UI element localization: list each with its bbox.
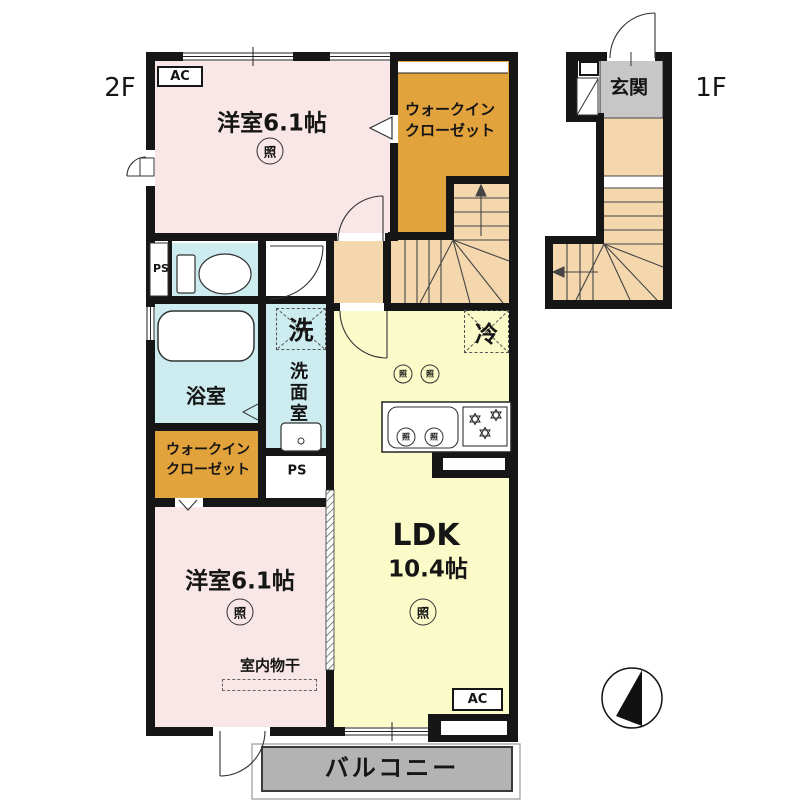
wall: [146, 423, 266, 431]
washer-symbol-box: 洗: [276, 308, 326, 350]
ldk-door-opening: [340, 303, 384, 311]
shoe-box: [580, 62, 598, 75]
fridge-symbol-box: 冷: [464, 310, 509, 353]
wall: [450, 176, 518, 184]
balcony-label: バルコニー: [325, 756, 460, 780]
room-fills: [150, 55, 664, 729]
wall: [146, 296, 334, 304]
wall: [146, 498, 334, 507]
wall: [326, 241, 334, 455]
floor-plan: 2F 1F AC AC 洋室6.1帖 照 ウォークイン クローゼット 玄関 PS…: [0, 0, 800, 800]
kitchen-light-symbol: 照: [394, 365, 413, 384]
floor-label-1f: 1F: [695, 75, 727, 101]
wic-left-label-1: ウォークイン: [166, 443, 250, 457]
entrance-label: 玄関: [610, 79, 648, 98]
wall: [545, 236, 604, 244]
toilet-door-arc: [270, 246, 323, 299]
bedroom-top-label: 洋室6.1帖: [217, 113, 327, 136]
bathtub: [158, 311, 254, 361]
balcony-door-arc: [220, 731, 265, 776]
kitchen-light-symbol: 照: [425, 428, 444, 447]
wall: [446, 176, 454, 240]
ldk-size-label: 10.4帖: [388, 559, 468, 582]
wic-top-label-1: ウォークイン: [405, 103, 495, 118]
kitchen-light-symbol: 照: [421, 365, 440, 384]
ps-label-left: PS: [153, 262, 165, 276]
washroom-label: 洗面室: [288, 362, 306, 425]
wic-left-label-2: クローゼット: [166, 463, 250, 477]
wall: [390, 52, 398, 241]
toilet-bowl: [199, 254, 251, 294]
floor-label-2f: 2F: [104, 75, 136, 101]
light-symbol: 照: [227, 599, 254, 626]
wic-top-label-2: クローゼット: [405, 124, 495, 139]
bedroom-bottom-label: 洋室6.1帖: [185, 571, 295, 594]
floorplan-svg: [0, 0, 800, 800]
toilet-tank: [177, 255, 195, 293]
light-symbol: 照: [410, 599, 437, 626]
ps-label-bottom: PS: [288, 465, 307, 478]
wall: [596, 113, 604, 244]
bedroom-top-door-opening: [337, 233, 385, 241]
light-symbol: 照: [257, 138, 284, 165]
kitchen-light-symbol: 照: [397, 428, 416, 447]
balcony-door-opening: [213, 727, 270, 736]
drying-rail: [222, 679, 317, 691]
wall: [545, 300, 672, 309]
wic-top-floor-l: [395, 178, 452, 236]
window-sash: [140, 158, 154, 176]
closet-window-band: [398, 62, 508, 73]
wall: [663, 52, 672, 309]
wic-left-opening: [175, 498, 203, 507]
wall: [509, 52, 518, 736]
wall: [258, 241, 266, 431]
vanity-sink: [281, 423, 321, 451]
wall: [258, 430, 266, 498]
wall: [388, 232, 454, 240]
wall: [545, 236, 553, 309]
bath-label: 浴室: [186, 386, 226, 406]
wall: [566, 52, 578, 122]
ldk-label: LDK: [392, 521, 459, 551]
ac-box-top: AC: [157, 66, 203, 87]
compass: [602, 668, 662, 728]
sliding-door: [326, 490, 334, 670]
indoor-drying-label: 室内物干: [240, 659, 300, 674]
ac-box-bottom: AC: [452, 688, 503, 711]
hall-floor: [330, 236, 387, 308]
stairs-1f-landing: [602, 176, 663, 188]
entrance-door-arc: [610, 13, 655, 58]
wall: [383, 233, 391, 311]
